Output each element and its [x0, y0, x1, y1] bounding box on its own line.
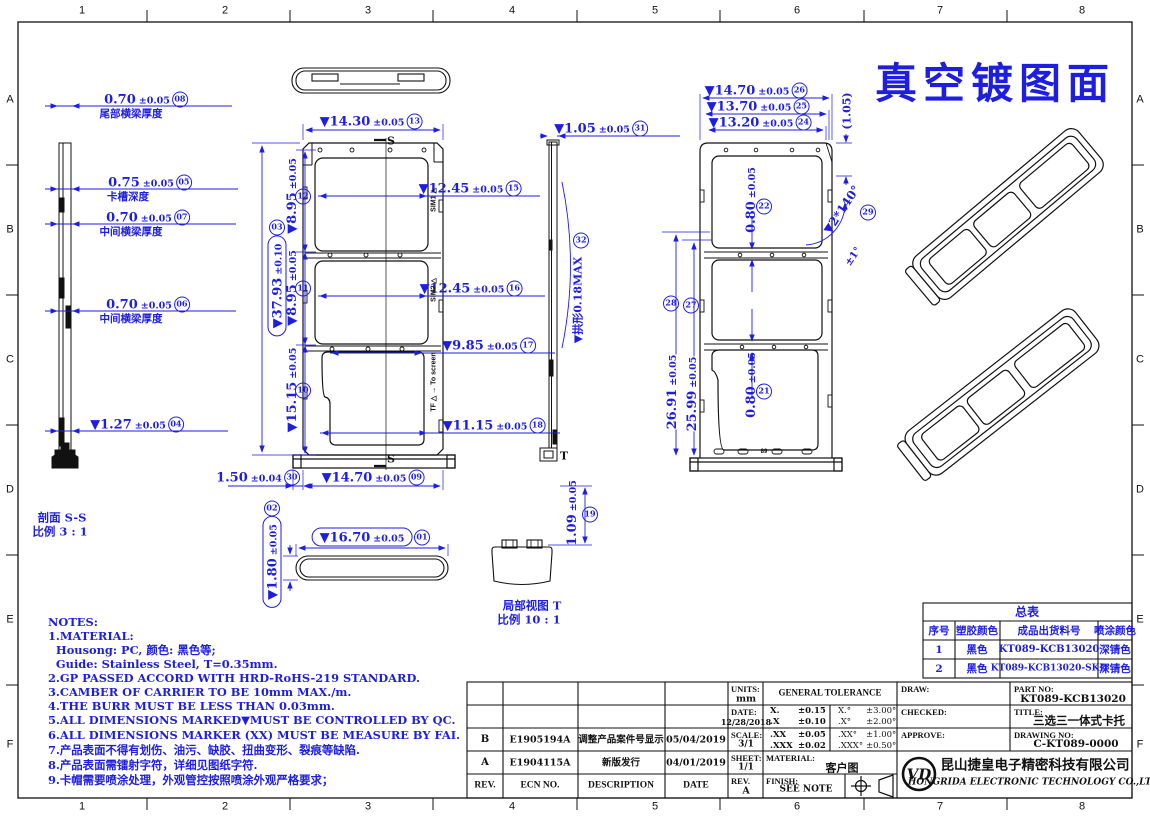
- zone-col-top-1: 1: [79, 6, 85, 17]
- dim-02-bubble: 02: [264, 500, 280, 517]
- rev-row-a-date: 04/01/2019: [666, 758, 726, 768]
- summary-header-1: 塑胶颜色: [956, 626, 998, 637]
- date-value: 12/28/2018: [721, 718, 771, 726]
- section-letter-top: S: [387, 136, 395, 147]
- tol-r2-v: ±0.05: [798, 731, 826, 740]
- zone-col-bot-7: 7: [937, 802, 943, 813]
- summary-r1-c0: 1: [935, 645, 942, 656]
- side-view-2: [540, 140, 559, 461]
- back-view: [690, 143, 842, 471]
- zone-col-bot-8: 8: [1079, 802, 1085, 813]
- zone-row-right-f: F: [1137, 740, 1144, 751]
- zone-col-top-5: 5: [652, 6, 658, 17]
- notes-line-10: 8.产品表面需镭射字符，详细见图纸字符.: [48, 760, 258, 771]
- tol-r2-l: .XX: [770, 731, 786, 740]
- tolerance-title: GENERAL TOLERANCE: [779, 689, 882, 698]
- notes-line-6: 4.THE BURR MUST BE LESS THAN 0.03mm.: [48, 701, 335, 712]
- dim-21-bubble: 21: [756, 383, 772, 400]
- dim-01: ▼16.70±0.05: [312, 528, 413, 547]
- tol-r3-l: .XXX: [770, 742, 793, 751]
- zone-row-right-b: B: [1136, 225, 1143, 236]
- notes-line-2: Housong: PC, 颜色: 黑色等;: [48, 645, 216, 656]
- zone-row-left-d: D: [6, 485, 14, 496]
- units-value: mm: [736, 694, 756, 704]
- section-ss-label: 剖面 S-S: [38, 512, 87, 524]
- zone-col-top-7: 7: [937, 6, 943, 17]
- notes-line-3: Guide: Stainless Steel, T=0.35mm.: [48, 659, 278, 670]
- dim-02: ▼1.80±0.05: [263, 516, 282, 608]
- dim-19: 1.09±0.05: [563, 480, 579, 546]
- cap-view: [296, 556, 448, 580]
- rev-value: A: [742, 786, 749, 796]
- dim-05-label: 卡槽深度: [107, 192, 149, 203]
- dim-24: ▼13.20±0.0524: [709, 114, 812, 131]
- rev-label: REV.: [731, 777, 750, 786]
- zone-col-top-3: 3: [365, 6, 371, 17]
- rev-row-a-desc: 新版发行: [602, 758, 640, 768]
- section-letter-bottom: S: [387, 454, 395, 465]
- dim-31: ▼1.05±0.0531: [554, 120, 648, 137]
- dim-29-bubble: 29: [860, 204, 876, 221]
- tol-r1-l2: .X°: [838, 718, 851, 727]
- zone-row-left-e: E: [6, 615, 13, 626]
- approve-label: APPROVE:: [901, 731, 945, 740]
- summary-r2-c3: 深锖色: [1099, 664, 1131, 675]
- summary-header-2: 成品出货料号: [1018, 626, 1081, 637]
- zone-col-bot-6: 6: [794, 802, 800, 813]
- rev-header-ecn: ECN NO.: [520, 781, 559, 791]
- dim-18: ▼11.15±0.0518: [443, 417, 546, 434]
- rev-row-b-ecn: E1905194A: [510, 735, 571, 745]
- dim-32-bubble: 32: [573, 232, 589, 249]
- material-value: 客户图: [826, 763, 859, 774]
- dim-ref-105: (1.05): [842, 92, 853, 129]
- tol-r1-l: .X: [770, 718, 780, 727]
- detail-view-t: [492, 540, 552, 585]
- dim-28-bubble: 28: [663, 295, 679, 312]
- dim-32: ▼拱形0.18MAX: [573, 257, 584, 344]
- summary-header-0: 序号: [929, 626, 950, 637]
- rev-header-rev: REV.: [474, 781, 495, 791]
- units-label: UNITS:: [731, 685, 760, 694]
- zone-row-left-a: A: [6, 95, 13, 106]
- notes-line-4: 2.GP PASSED ACCORD WITH HRD-RoHS-219 STA…: [48, 673, 420, 684]
- sheet-label: SHEET:: [731, 754, 762, 763]
- zone-col-top-8: 8: [1079, 6, 1085, 17]
- tol-r0-v2: ±3.00°: [866, 707, 896, 716]
- summary-header-3: 喷涂颜色: [1094, 626, 1136, 637]
- dim-26: ▼14.70±0.0526: [705, 82, 808, 99]
- checked-label: CHECKED:: [901, 708, 947, 717]
- dim-17: ▼9.85±0.0517: [442, 337, 536, 354]
- tol-r3-v: ±0.02: [798, 742, 826, 751]
- marking-89: 89: [761, 449, 768, 455]
- zone-row-left-b: B: [6, 225, 13, 236]
- dim-08-label: 尾部横梁厚度: [100, 109, 163, 120]
- sheet-title: 真空镀图面: [875, 63, 1115, 105]
- summary-r2-c2: KT089-KCB13020-SKD: [991, 665, 1108, 674]
- dim-05: 0.75±0.0505: [108, 174, 192, 191]
- dim-28: 26.91±0.05: [663, 355, 679, 430]
- scale-label: SCALE:: [731, 731, 762, 740]
- company-name-en: HONGRIDA ELECTRONIC TECHNOLOGY CO.,LTD.: [908, 779, 1150, 788]
- summary-r2-c1: 黑色: [967, 664, 988, 675]
- detail-t-label: 局部视图 T: [503, 600, 562, 612]
- draw-label: DRAW:: [901, 685, 929, 694]
- tol-r3-v2: ±0.50°: [866, 742, 896, 751]
- drawing-sheet: 1 2 3 4 5 6 7 8 1 2 3 4 5 6 7 8 A B C D …: [0, 0, 1150, 817]
- tol-r0-l: X.: [770, 707, 780, 716]
- dim-22-bubble: 22: [756, 198, 772, 215]
- tol-r1-v: ±0.10: [798, 718, 826, 727]
- marking-sim2: SIM2 △: [431, 278, 438, 302]
- notes-line-8: 6.ALL DIMENSIONS MARKER (XX) MUST BE MEA…: [48, 730, 460, 741]
- marking-sim1: SIM1 △: [431, 188, 438, 212]
- rev-row-a-rev: A: [481, 758, 489, 768]
- tol-r0-v: ±0.15: [798, 707, 826, 716]
- zone-row-right-a: A: [1136, 95, 1143, 106]
- dim-30: 1.50±0.0430: [216, 469, 300, 486]
- zone-row-left-f: F: [7, 740, 14, 751]
- summary-r2-c0: 2: [935, 664, 942, 675]
- tol-r1-v2: ±2.00°: [866, 718, 896, 727]
- notes-line-1: 1.MATERIAL:: [48, 631, 134, 642]
- rev-row-b-desc: 调整产品案件号显示: [578, 735, 664, 745]
- zone-col-bot-1: 1: [79, 802, 85, 813]
- zone-col-bot-5: 5: [652, 802, 658, 813]
- summary-title: 总表: [1015, 606, 1039, 618]
- zone-col-top-4: 4: [509, 6, 515, 17]
- dim-25: ▼13.70±0.0525: [707, 98, 810, 115]
- dim-09: ▼14.70±0.0509: [322, 469, 425, 486]
- tol-r2-v2: ±1.00°: [866, 731, 896, 740]
- dim-12-bubble: 12: [295, 188, 311, 205]
- zone-col-top-2: 2: [222, 6, 228, 17]
- dim-13: ▼14.30±0.0513: [320, 113, 423, 130]
- summary-r1-c3: 深锖色: [1099, 645, 1131, 656]
- dim-07-label: 中间横梁厚度: [100, 227, 163, 238]
- finish-value: SEE NOTE: [780, 786, 833, 795]
- dim-11-bubble: 11: [295, 280, 311, 297]
- summary-r1-c2: KT089-KCB13020: [999, 645, 1100, 655]
- iso-view-2: [894, 305, 1103, 485]
- zone-row-left-c: C: [6, 355, 14, 366]
- dim-27-bubble: 27: [683, 297, 699, 314]
- dim-06-label: 中间横梁厚度: [100, 314, 163, 325]
- drawing-no-value: C-KT089-0000: [1033, 739, 1118, 750]
- iso-view-1: [902, 125, 1108, 310]
- dim-04: ▼1.27±0.0504: [90, 416, 184, 433]
- zone-col-bot-4: 4: [509, 802, 515, 813]
- zone-row-right-c: C: [1136, 355, 1144, 366]
- tol-r3-l2: .XXX°: [838, 742, 863, 751]
- tol-r2-l2: .XX°: [838, 731, 857, 740]
- company-name-cn: 昆山捷皇电子精密科技有限公司: [941, 759, 1130, 773]
- zone-col-bot-2: 2: [222, 802, 228, 813]
- notes-line-9: 7.产品表面不得有划伤、油污、缺胶、扭曲变形、裂痕等缺陷.: [48, 745, 360, 756]
- title-value: 三选三一体式卡托: [1033, 715, 1125, 727]
- section-ss-scale: 比例 3 : 1: [32, 526, 87, 538]
- dim-19-bubble: 19: [582, 506, 598, 523]
- dim-08: 0.70±0.0508: [104, 91, 188, 108]
- detail-letter: T: [560, 451, 568, 462]
- top-end-view: [292, 68, 450, 93]
- notes-line-5: 3.CAMBER OF CARRIER TO BE 10mm MAX./m.: [48, 687, 351, 698]
- rev-header-desc: DESCRIPTION: [588, 781, 654, 791]
- scale-value: 3/1: [738, 741, 754, 750]
- date-label: DATE:: [731, 708, 757, 717]
- sheet-value: 1/1: [738, 764, 754, 773]
- zone-col-bot-3: 3: [365, 802, 371, 813]
- zone-col-top-6: 6: [794, 6, 800, 17]
- summary-r1-c1: 黑色: [967, 645, 988, 656]
- detail-t-scale: 比例 10 : 1: [497, 614, 560, 626]
- zone-row-right-d: D: [1136, 485, 1144, 496]
- side-section-view: [52, 143, 78, 468]
- dim-06: 0.70±0.0506: [106, 296, 190, 313]
- rev-row-a-ecn: E1904115A: [510, 758, 571, 768]
- notes-line-7: 5.ALL DIMENSIONS MARKED▼MUST BE CONTROLL…: [48, 715, 455, 726]
- notes-line-0: NOTES:: [48, 617, 98, 628]
- zone-row-right-e: E: [1136, 615, 1143, 626]
- notes-line-11: 9.卡帽需要喷涂处理，外观管控按照喷涂外观严格要求；: [48, 775, 333, 786]
- rev-row-b-rev: B: [481, 735, 489, 745]
- projection-symbols: [851, 775, 893, 797]
- dim-01-bubble: 01: [414, 529, 430, 546]
- dim-10-bubble: 10: [295, 382, 311, 399]
- material-label: MATERIAL:: [766, 754, 815, 763]
- marking-tf: TF △ → To screen: [431, 352, 438, 411]
- dim-27: 25.99±0.05: [683, 357, 699, 432]
- rev-row-b-date: 05/04/2019: [666, 735, 726, 745]
- part-no-value: KT089-KCB13020: [1020, 694, 1126, 705]
- tol-r0-l2: X.°: [838, 707, 851, 716]
- rev-header-date: DATE: [683, 781, 709, 791]
- dim-07: 0.70±0.0507: [106, 209, 190, 226]
